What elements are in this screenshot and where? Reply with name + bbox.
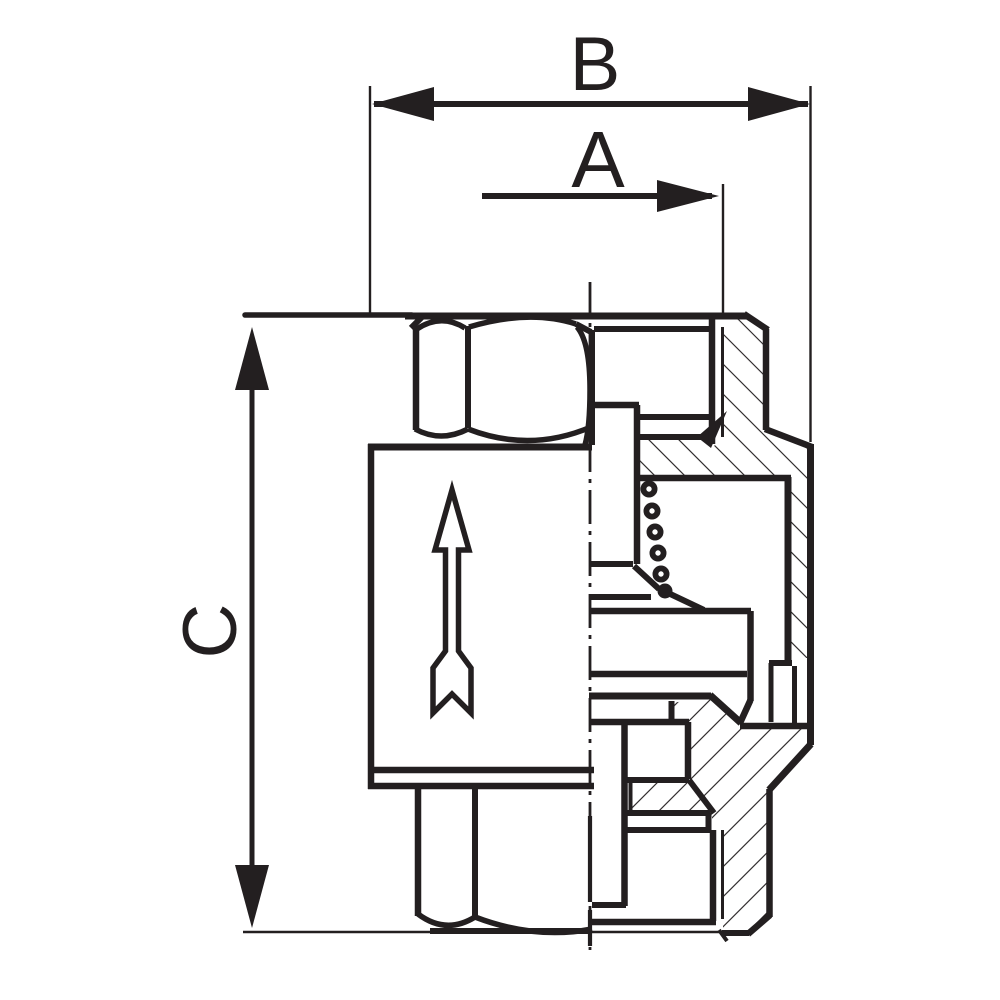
svg-text:A: A (571, 115, 625, 204)
svg-text:C: C (168, 604, 253, 659)
svg-text:B: B (570, 22, 621, 107)
